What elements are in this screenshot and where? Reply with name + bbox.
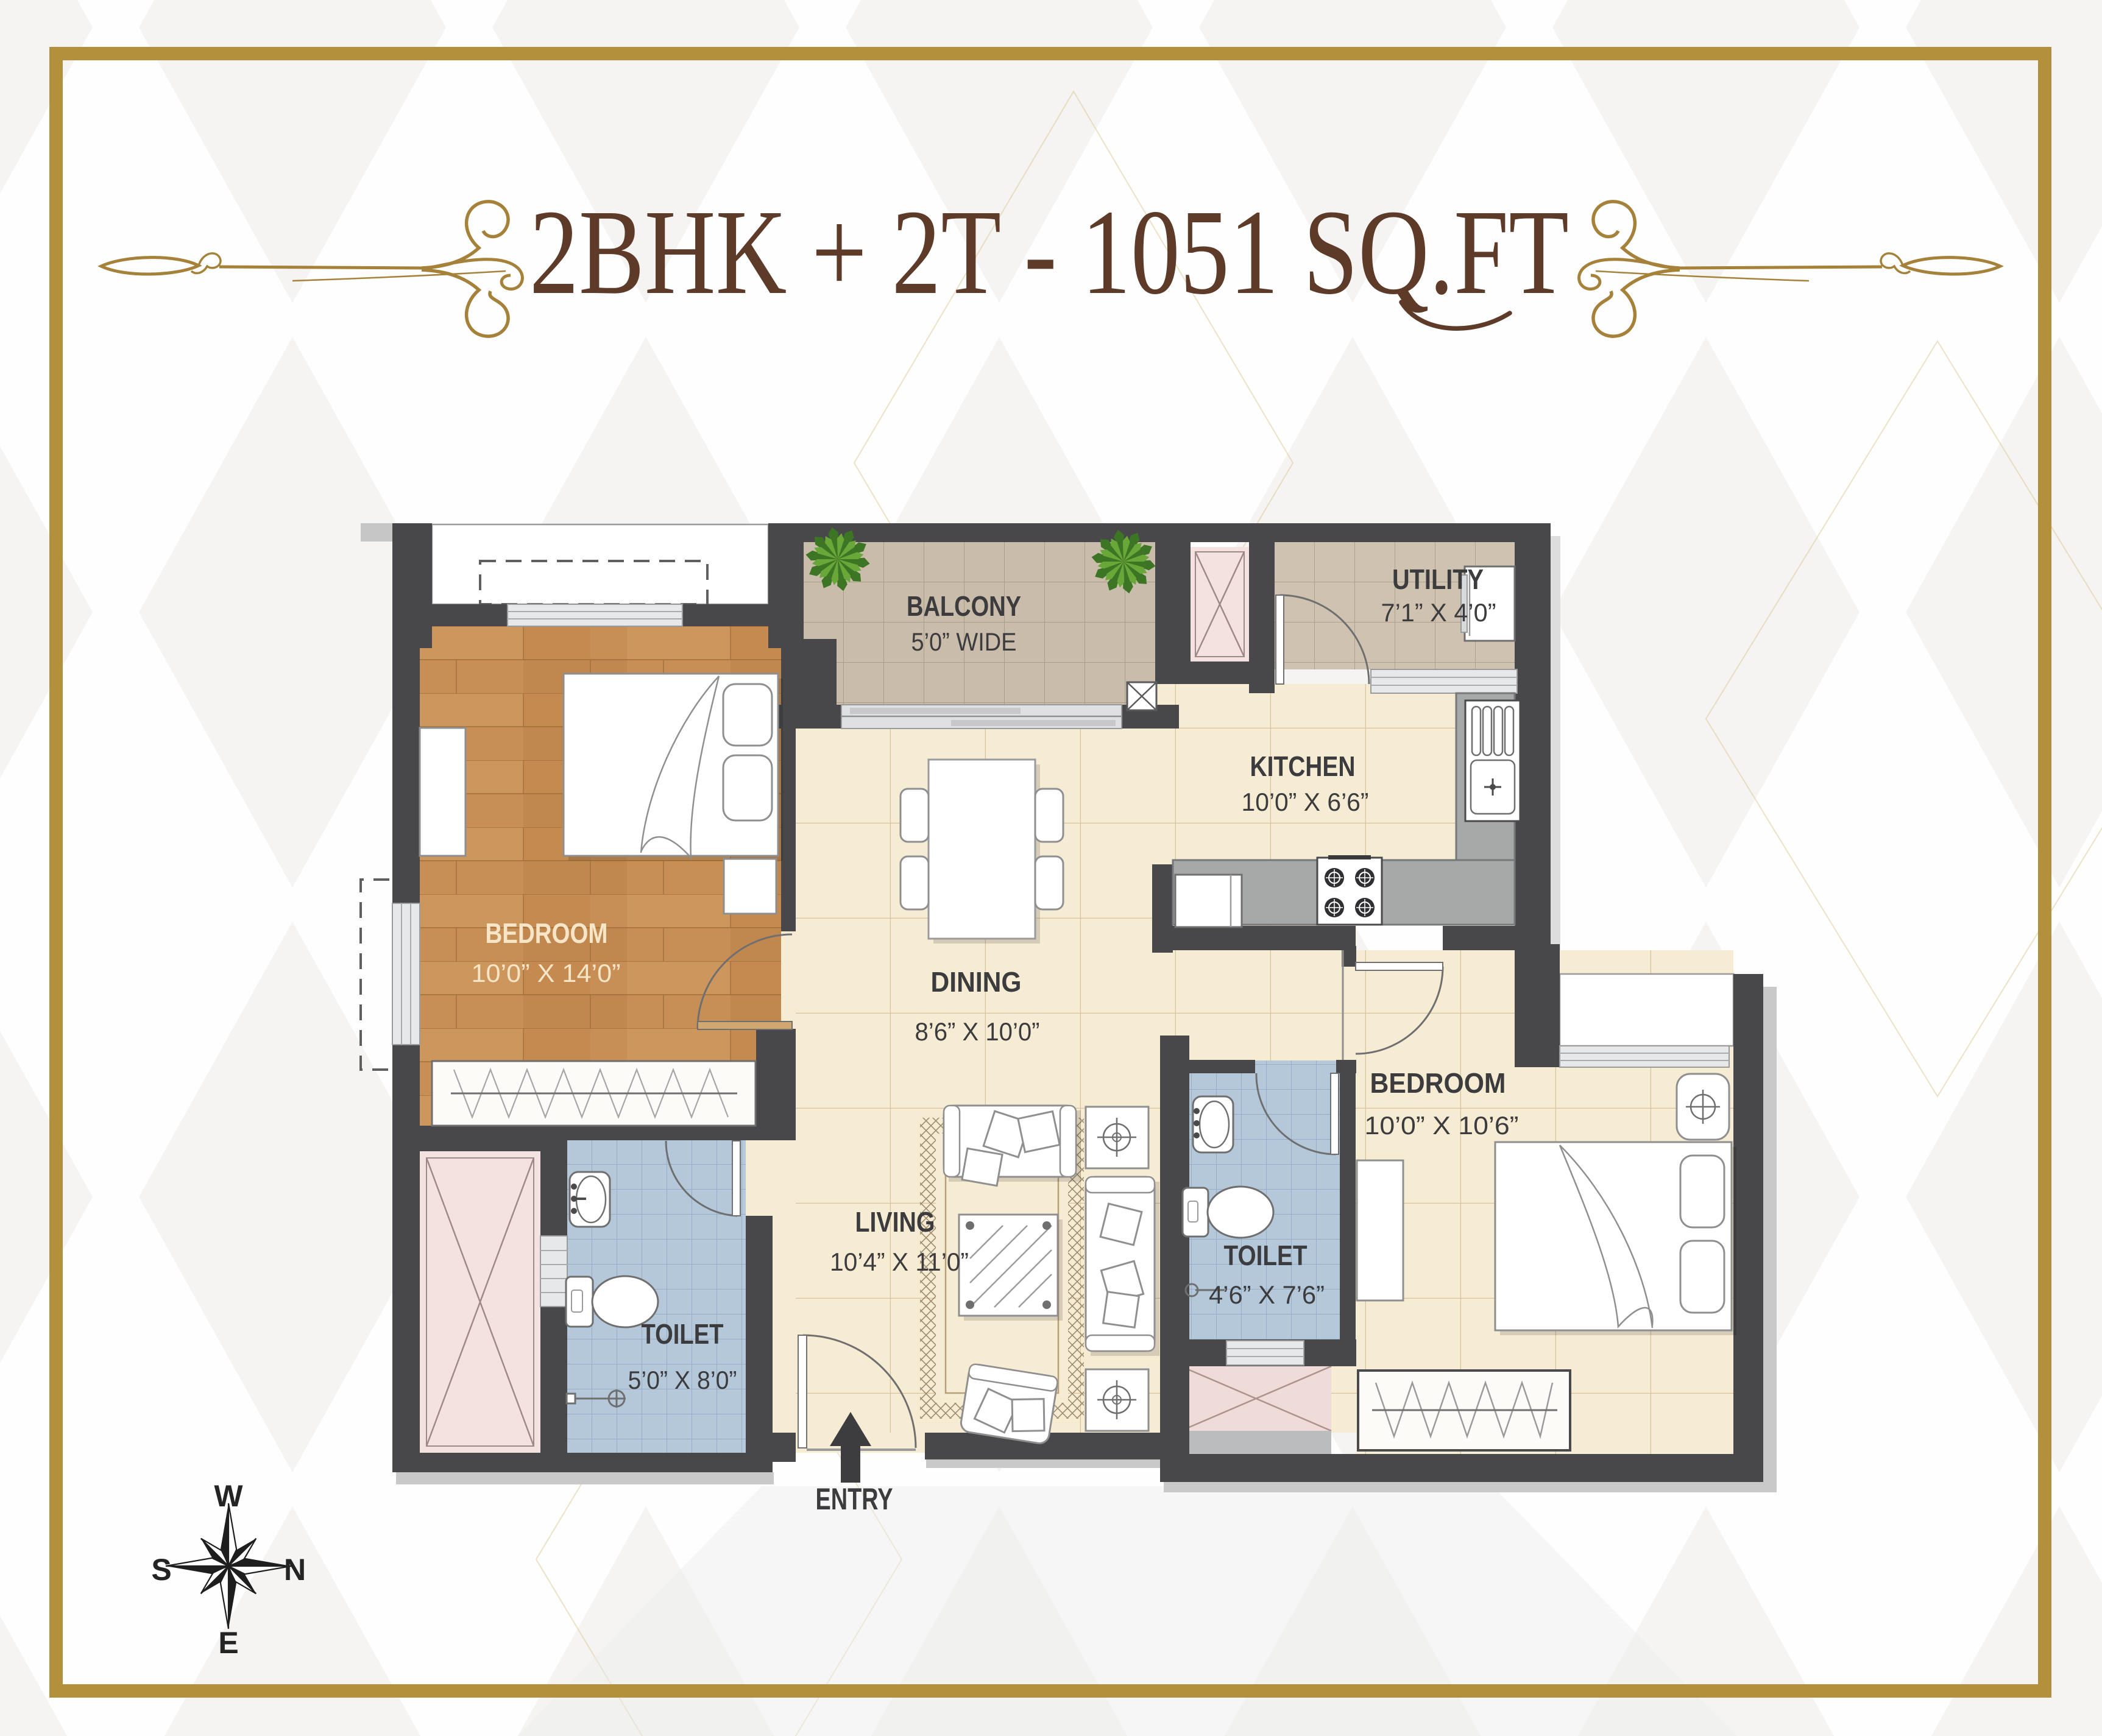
svg-text:LIVING: LIVING [855, 1206, 935, 1238]
svg-text:TOILET: TOILET [642, 1318, 724, 1350]
svg-text:DINING: DINING [931, 966, 1022, 998]
svg-text:5’0” X 8’0”: 5’0” X 8’0” [628, 1366, 737, 1394]
svg-text:W: W [214, 1479, 243, 1513]
svg-text:BEDROOM: BEDROOM [486, 917, 608, 949]
svg-text:S: S [151, 1553, 171, 1587]
svg-text:BEDROOM: BEDROOM [1370, 1067, 1506, 1099]
svg-text:10’0” X 6’6”: 10’0” X 6’6” [1242, 788, 1369, 816]
svg-text:4’6” X 7’6”: 4’6” X 7’6” [1209, 1280, 1325, 1309]
svg-text:2BHK + 2T - 1051 SQ.FT: 2BHK + 2T - 1051 SQ.FT [529, 185, 1569, 320]
svg-text:10’0” X 10’6”: 10’0” X 10’6” [1365, 1111, 1519, 1140]
svg-text:KITCHEN: KITCHEN [1250, 750, 1356, 782]
svg-text:UTILITY: UTILITY [1392, 563, 1484, 595]
svg-text:7’1” X 4’0”: 7’1” X 4’0” [1381, 598, 1496, 627]
svg-text:10’0” X 14’0”: 10’0” X 14’0” [472, 959, 621, 987]
svg-text:ENTRY: ENTRY [816, 1482, 893, 1516]
svg-text:N: N [284, 1553, 306, 1587]
svg-text:TOILET: TOILET [1224, 1240, 1308, 1271]
svg-text:BALCONY: BALCONY [907, 590, 1021, 622]
svg-text:E: E [218, 1626, 238, 1660]
svg-text:10’4” X 11’0”: 10’4” X 11’0” [830, 1247, 969, 1276]
svg-text:8’6” X 10’0”: 8’6” X 10’0” [915, 1017, 1040, 1046]
svg-text:5’0” WIDE: 5’0” WIDE [911, 627, 1017, 656]
